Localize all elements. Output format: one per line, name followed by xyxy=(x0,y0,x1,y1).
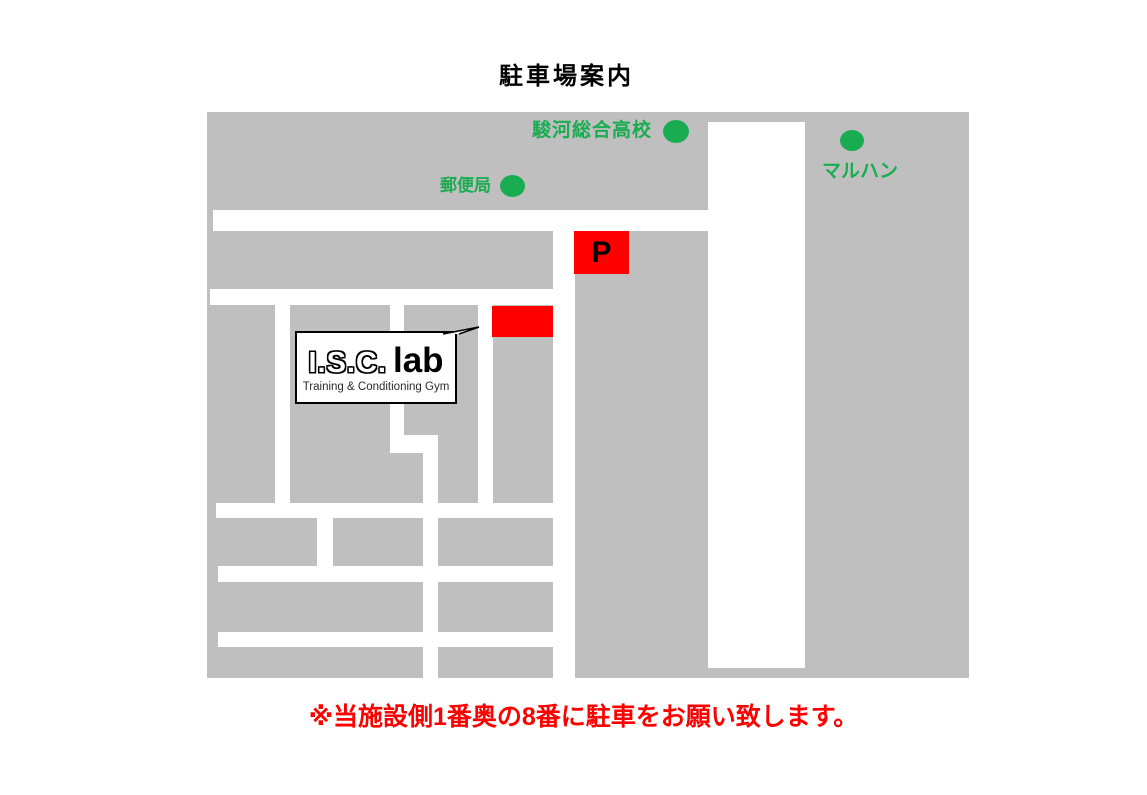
road-middle-vertical-lower xyxy=(423,453,438,678)
isc-lab-logo: I.S.C. lab xyxy=(308,343,443,378)
parking-lot-marker: P xyxy=(574,231,629,274)
parking-spot-8-marker xyxy=(492,306,553,337)
road-top-horizontal xyxy=(213,210,708,231)
road-lower-horizontal-1 xyxy=(216,503,553,518)
logo-isc-text: I.S.C. xyxy=(308,349,387,378)
road-left-vertical xyxy=(275,305,290,503)
callout-tail-icon xyxy=(435,320,485,336)
road-short-vertical xyxy=(317,518,333,566)
logo-subtitle: Training & Conditioning Gym xyxy=(303,381,450,393)
maruhan-label: マルハン xyxy=(822,161,898,182)
parking-note: ※当施設側1番奥の8番に駐車をお願い致します。 xyxy=(10,697,1147,733)
post-office-dot-icon xyxy=(500,175,525,197)
parking-guide-page: 駐車場案内 P 駿河総合高校 郵便局 マルハン I.S.C. xyxy=(0,0,1147,795)
road-main-vertical-wide xyxy=(708,122,805,668)
road-lower-horizontal-3 xyxy=(218,632,553,647)
road-middle-jog xyxy=(390,435,438,453)
maruhan-dot-icon xyxy=(840,130,864,151)
logo-lab-text: lab xyxy=(393,343,444,378)
parking-p-label: P xyxy=(591,238,611,268)
school-label: 駿河総合高校 xyxy=(452,120,652,141)
page-title: 駐車場案内 xyxy=(0,56,1140,91)
parking-map: P 駿河総合高校 郵便局 マルハン I.S.C. lab Training & … xyxy=(207,112,969,678)
road-second-horizontal xyxy=(210,289,553,305)
road-facility-vertical xyxy=(553,231,575,678)
school-dot-icon xyxy=(663,120,689,143)
isc-lab-callout: I.S.C. lab Training & Conditioning Gym xyxy=(295,331,457,404)
road-lower-horizontal-2 xyxy=(218,566,553,582)
post-office-label: 郵便局 xyxy=(440,175,491,196)
